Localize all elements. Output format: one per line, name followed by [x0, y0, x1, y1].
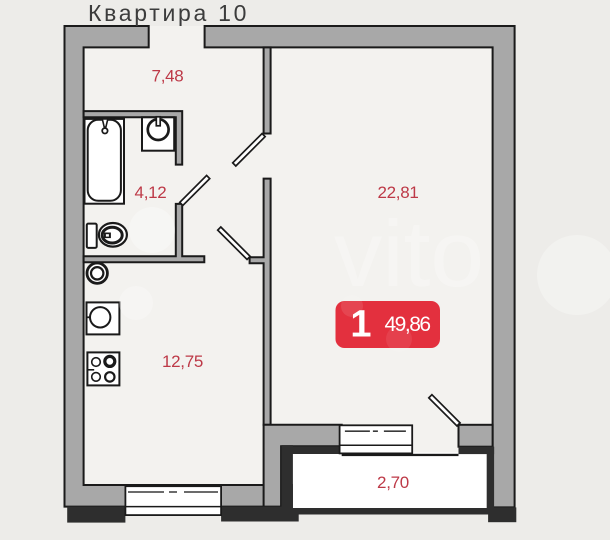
- svg-text:7,48: 7,48: [152, 67, 184, 86]
- svg-text:Квартира 10: Квартира 10: [88, 0, 249, 26]
- svg-text:12,75: 12,75: [162, 352, 203, 371]
- svg-text:2,70: 2,70: [377, 473, 409, 492]
- svg-text:4,12: 4,12: [135, 183, 167, 202]
- svg-text:22,81: 22,81: [377, 183, 418, 202]
- svg-text:vito: vito: [334, 201, 484, 306]
